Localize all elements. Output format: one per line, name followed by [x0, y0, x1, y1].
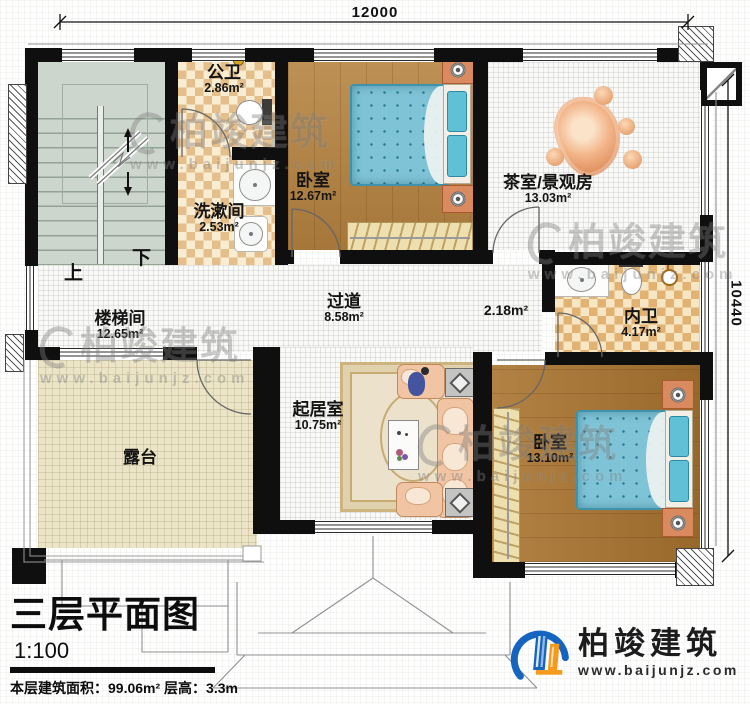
sink — [567, 267, 596, 292]
room-label-bedroom-bottom: 卧室 13.10m² — [490, 434, 610, 466]
room-name: 露台 — [80, 449, 200, 467]
wall-segment — [25, 48, 62, 62]
window — [701, 90, 712, 215]
room-label-hallway: 过道 8.58m² — [284, 293, 404, 325]
room-label-living: 起居室 10.75m² — [258, 401, 378, 433]
bed-top — [350, 84, 450, 186]
pillow — [669, 416, 689, 457]
room-name: 内卫 — [581, 308, 701, 326]
room-label-stairwell: 楼梯间 12.65m² — [50, 310, 190, 342]
hatch-block — [676, 548, 714, 586]
room-area: 13.10m² — [490, 452, 610, 466]
wall-segment — [232, 147, 288, 160]
floor-plan-canvas: 楼梯间 12.65m² 公卫 2.86m² 洗漱间 2.53m² 卧室 12.6… — [0, 0, 750, 704]
brand-logo: 柏竣建筑 www.baijunjz.com — [508, 620, 739, 686]
room-name: 楼梯间 — [50, 310, 190, 328]
coffee-table — [388, 420, 419, 470]
wall-segment — [134, 48, 192, 62]
sofa-cushion — [405, 487, 431, 505]
wall-segment — [288, 250, 294, 264]
room-name: 洗漱间 — [159, 203, 279, 221]
pillow — [447, 135, 467, 177]
window — [701, 262, 712, 352]
pebble — [618, 118, 635, 135]
hatch-block — [678, 26, 714, 62]
logo-url: www.baijunjz.com — [578, 662, 739, 678]
wardrobe-top-bedroom — [347, 222, 473, 251]
toilet-bowl — [236, 100, 263, 125]
wardrobe-bottom-bedroom — [493, 408, 520, 563]
person-figure — [408, 372, 425, 396]
stair-center-rail — [97, 106, 104, 264]
sofa-cushion — [442, 407, 468, 435]
window — [314, 49, 434, 61]
room-area: 12.67m² — [253, 190, 373, 204]
room-area: 2.18m² — [446, 303, 566, 318]
pebble — [623, 150, 642, 169]
room-name: 卧室 — [253, 172, 373, 190]
floor-area-text: 本层建筑面积：99.06m² — [10, 680, 160, 696]
room-name: 公卫 — [164, 64, 284, 82]
hatch-block — [5, 334, 24, 372]
pebble — [546, 148, 564, 166]
wall-segment — [700, 215, 713, 262]
terrace-corner-block — [12, 548, 46, 584]
window — [701, 400, 712, 548]
title-block: 三层平面图1:100 本层建筑面积：99.06m² 层高：3.3m — [10, 584, 240, 698]
room-area: 13.03m² — [468, 192, 628, 206]
wall-segment — [253, 347, 280, 533]
room-label-inner-bath: 内卫 4.17m² — [581, 308, 701, 340]
floor-height-text: 层高：3.3m — [164, 680, 238, 696]
pillow — [669, 460, 689, 502]
dim-right: 10440 — [728, 274, 745, 334]
room-area: 8.58m² — [284, 311, 404, 325]
window — [62, 49, 134, 61]
wall-segment — [473, 48, 488, 253]
wall-segment — [473, 562, 525, 578]
wall-segment — [163, 347, 197, 360]
dim-top: 12000 — [320, 4, 430, 21]
flower-decor — [402, 454, 408, 460]
room-label-bedroom-top: 卧室 12.67m² — [253, 172, 373, 204]
room-area: 2.53m² — [159, 221, 279, 235]
room-label-tearoom: 茶室/景观房 13.03m² — [468, 174, 628, 206]
wall-segment — [545, 252, 700, 265]
bed-top-headboard — [443, 84, 471, 184]
logo-text: 柏竣建筑 — [578, 628, 739, 659]
window — [315, 521, 432, 533]
room-label-public-bath: 公卫 2.86m² — [164, 64, 284, 96]
shower-head — [661, 269, 678, 286]
room-label-terrace: 露台 — [80, 449, 200, 467]
room-area: 4.17m² — [581, 326, 701, 340]
stair-landing-outline — [62, 84, 148, 204]
window — [26, 266, 37, 330]
flower-decor — [397, 456, 402, 461]
title-underline — [10, 667, 215, 673]
pillow — [447, 91, 467, 132]
nightstand — [662, 508, 694, 537]
room-area: 2.86m² — [164, 82, 284, 96]
toilet-tank — [262, 99, 272, 125]
room-name: 起居室 — [258, 401, 378, 419]
window — [525, 563, 675, 576]
bed-bottom-headboard — [665, 410, 693, 508]
stairs-down-label: 下 — [132, 243, 151, 270]
toilet-bowl — [621, 268, 642, 295]
wall-segment — [253, 520, 315, 534]
stairs-up-label: 上 — [64, 258, 83, 285]
room-label-washroom: 洗漱间 2.53m² — [159, 203, 279, 235]
room-name: 茶室/景观房 — [468, 174, 628, 192]
side-table — [445, 488, 474, 517]
room-name: 过道 — [284, 293, 404, 311]
table-dot — [397, 431, 401, 435]
flue-box — [701, 62, 742, 106]
window — [523, 49, 657, 61]
sofa-cushion — [442, 443, 468, 471]
wall-segment — [25, 347, 60, 360]
side-table — [445, 368, 474, 397]
pebble — [594, 86, 613, 105]
room-name: 卧室 — [490, 434, 610, 452]
plan-scale: 1:100 — [14, 638, 69, 663]
room-area: 10.75m² — [258, 419, 378, 433]
wall-segment — [545, 352, 700, 365]
wall-segment — [700, 352, 713, 400]
innerbath-counter — [554, 262, 609, 297]
plan-title: 三层平面图 — [10, 594, 200, 635]
nightstand — [662, 380, 694, 409]
room-area: 12.65m² — [50, 328, 190, 342]
window — [192, 49, 245, 61]
table-dot — [405, 433, 408, 436]
room-label-nook: 2.18m² — [446, 303, 566, 318]
window — [60, 348, 163, 359]
hatch-block — [8, 84, 27, 184]
logo-glyph-icon — [508, 620, 570, 686]
armchair-bottom — [396, 482, 443, 517]
wall-segment — [340, 250, 493, 264]
